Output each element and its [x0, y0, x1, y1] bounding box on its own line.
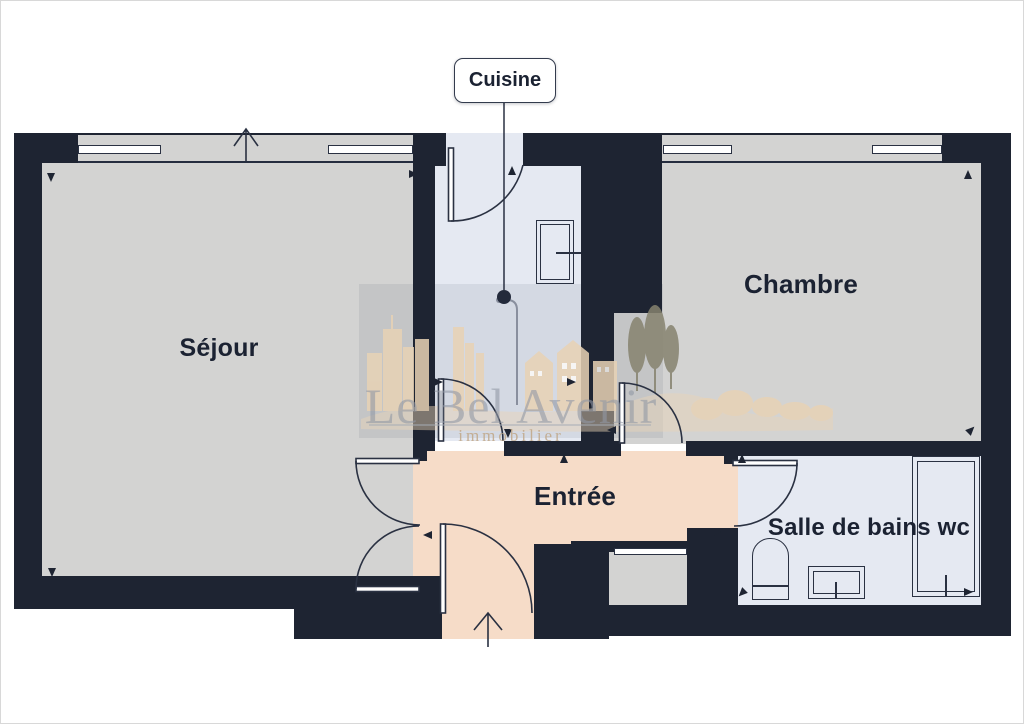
- room-label-sejour: Séjour: [119, 334, 319, 363]
- floor-cuisine-doorway: [446, 133, 523, 165]
- cuisine-callout[interactable]: Cuisine: [454, 58, 556, 103]
- wall-segment-right: [981, 133, 1011, 636]
- window-symbol: [663, 145, 732, 154]
- floor-closet: [609, 552, 687, 609]
- floor-chambre: [662, 163, 981, 444]
- window-symbol: [872, 145, 942, 154]
- wall-bath-left: [687, 528, 738, 628]
- cuisine-callout-label: Cuisine: [469, 69, 541, 92]
- wall-cuisine-chambre: [581, 163, 662, 313]
- watermark-tagline: immobilier: [359, 426, 663, 446]
- wall-jamb: [413, 451, 427, 461]
- floorplan-canvas: Le Bel Avenir immobilier Séjour Chambre …: [0, 0, 1024, 724]
- room-label-entree: Entrée: [475, 481, 675, 512]
- bathtub-tick: [945, 575, 947, 597]
- closet-door-symbol: [614, 548, 687, 555]
- wall-bottom-a: [14, 576, 294, 609]
- room-label-salle-de-bains: Salle de bains wc: [759, 514, 979, 542]
- kitchen-appliance-tick: [556, 252, 581, 254]
- wall-bottom-b: [294, 576, 442, 639]
- wall-jamb: [724, 444, 738, 464]
- wall-segment: [523, 133, 662, 166]
- room-label-chambre: Chambre: [701, 269, 901, 300]
- wall-segment-left: [14, 133, 42, 609]
- sink-tick: [835, 582, 837, 599]
- floor-sejour: [42, 163, 413, 576]
- wall-bottom-right: [534, 605, 1011, 636]
- window-symbol: [328, 145, 413, 154]
- wall-segment: [413, 133, 446, 166]
- floor-entree-nub: [688, 456, 724, 528]
- toilet-symbol: [752, 538, 789, 600]
- floor-bath-doorway: [724, 464, 738, 528]
- window-symbol: [78, 145, 161, 154]
